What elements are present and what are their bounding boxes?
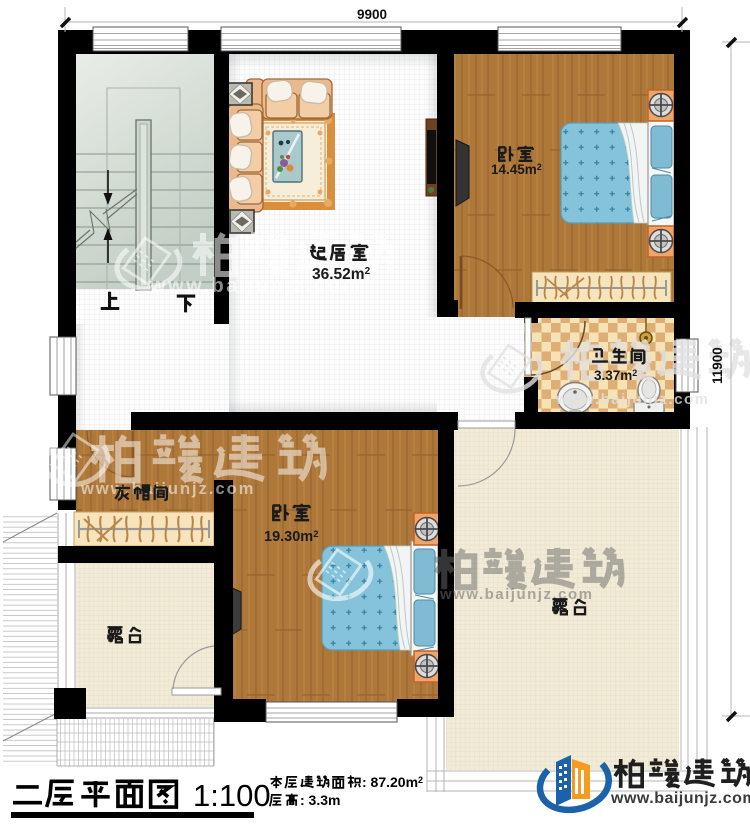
svg-text:www.baijunjz.com: www.baijunjz.com <box>555 391 709 408</box>
svg-text:14.45m2: 14.45m2 <box>491 162 542 177</box>
svg-text:3.37m2: 3.37m2 <box>594 368 637 383</box>
svg-text:1:100: 1:100 <box>193 778 271 813</box>
svg-text:: 87.20m2: : 87.20m2 <box>362 774 423 790</box>
svg-text:36.52m2: 36.52m2 <box>312 266 371 283</box>
svg-text:19.30m2: 19.30m2 <box>264 529 318 545</box>
svg-text:www.baijunjz.com: www.baijunjz.com <box>610 790 750 807</box>
svg-text:11900: 11900 <box>710 347 725 384</box>
svg-text:www.baijunjz.com: www.baijunjz.com <box>439 586 593 603</box>
svg-text:: 3.3m: : 3.3m <box>300 792 340 808</box>
svg-text:9900: 9900 <box>357 7 387 22</box>
